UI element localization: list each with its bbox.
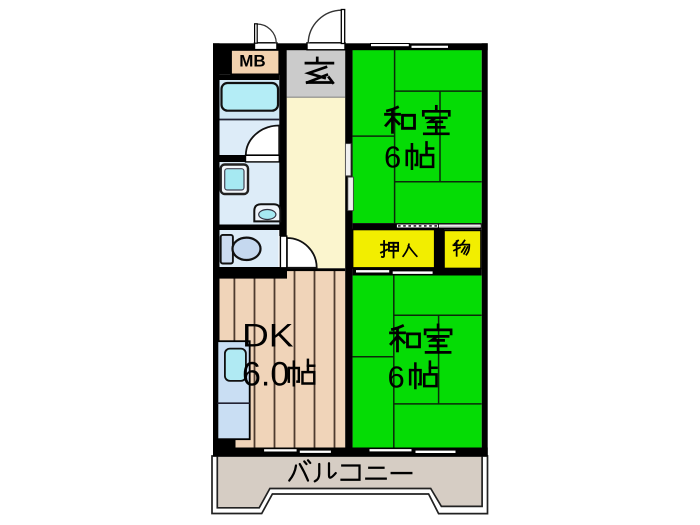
svg-text:MB: MB bbox=[239, 52, 265, 71]
svg-text:6: 6 bbox=[388, 359, 405, 394]
svg-text:6.0: 6.0 bbox=[242, 356, 289, 394]
svg-text:DK: DK bbox=[242, 319, 294, 354]
svg-text:6: 6 bbox=[384, 140, 401, 175]
